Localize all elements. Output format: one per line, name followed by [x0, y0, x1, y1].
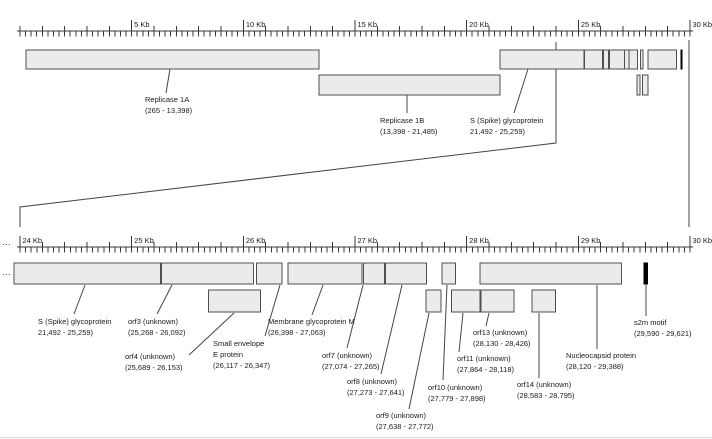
label-nucleocapsid-bottom-line1: Nucleocapsid protein: [566, 350, 636, 361]
feature-orf8-bottom: [385, 263, 426, 284]
feature-orf10-top: [640, 50, 643, 69]
label-orf3-bottom-line1: orf3 (unknown): [128, 316, 186, 327]
top-ruler-label: 5 Kb: [134, 20, 149, 29]
label-e-protein-bottom-line3: (26,117 - 26,347): [213, 360, 270, 371]
label-s-glycoprotein-top-line1: S (Spike) glycoprotein: [470, 115, 543, 126]
feature-orf11-top: [642, 75, 648, 95]
label-orf7-bottom-line2: (27,074 - 27,265): [322, 361, 380, 372]
feature-nucleocapsid-top: [648, 50, 676, 69]
feature-s2m-top: [681, 50, 682, 69]
label-orf13-bottom-line2: (28,130 - 28,426): [473, 338, 531, 349]
label-orf3-bottom: orf3 (unknown)(25,268 - 26,092): [128, 316, 186, 338]
feature-replicase-1a-top: [26, 50, 319, 69]
bottom-ruler-label: 28 Kb: [469, 236, 489, 245]
connector-orf3-bottom: [157, 285, 172, 314]
connector-orf8-bottom: [381, 285, 402, 374]
label-orf14-bottom-line2: (28,583 - 28,795): [517, 390, 575, 401]
label-m-glycoprotein-bottom: Membrane glycoprotein M(26,398 - 27,063): [268, 316, 355, 338]
label-orf13-bottom-line1: orf13 (unknown): [473, 327, 531, 338]
connector-replicase-1a-top: [166, 69, 170, 93]
diagram-canvas: 5 Kb10 Kb15 Kb20 Kb25 Kb30 Kb24 Kb25 Kb2…: [0, 0, 712, 439]
top-ruler-label: 15 Kb: [357, 20, 377, 29]
figure-bottom-edge: [0, 437, 712, 438]
top-ruler-label: 20 Kb: [469, 20, 489, 29]
bottom-ruler-label: 26 Kb: [246, 236, 266, 245]
bottom-track-continuation-ellipsis: ...: [2, 268, 11, 277]
label-orf10-bottom-line2: (27,779 - 27,898): [428, 393, 486, 404]
label-orf8-bottom-line1: orf8 (unknown): [347, 376, 405, 387]
connector-s-glycoprotein-bottom: [74, 285, 85, 314]
feature-orf8-top: [629, 50, 637, 69]
label-orf7-bottom-line1: orf7 (unknown): [322, 350, 380, 361]
label-s-glycoprotein-bottom-line1: S (Spike) glycoprotein: [38, 316, 111, 327]
feature-orf14-bottom: [532, 290, 556, 312]
top-ruler-label: 25 Kb: [581, 20, 601, 29]
label-e-protein-bottom-line2: E protein: [213, 349, 270, 360]
connector-orf13-bottom: [486, 313, 489, 326]
feature-orf7-top: [625, 50, 629, 69]
feature-orf7-bottom: [363, 263, 384, 284]
top-ruler-label: 10 Kb: [246, 20, 266, 29]
bottom-ruler-label: 27 Kb: [358, 236, 378, 245]
bottom-ruler-continuation-ellipsis: ...: [2, 238, 11, 247]
label-s-glycoprotein-bottom: S (Spike) glycoprotein21,492 - 25,259): [38, 316, 111, 338]
label-replicase-1a-top-line1: Replicase 1A: [145, 94, 192, 105]
feature-s-glycoprotein-top: [500, 50, 584, 69]
label-orf11-bottom-line1: orf11 (unknown): [457, 353, 514, 364]
connector-s-glycoprotein-top: [514, 69, 528, 113]
label-replicase-1b-top: Replicase 1B(13,398 - 21,485): [380, 115, 438, 137]
label-e-protein-bottom-line1: Small envelope: [213, 338, 270, 349]
feature-s2m-bottom: [644, 263, 647, 284]
label-s2m-bottom-line1: s2m motif: [634, 317, 692, 328]
label-orf9-bottom-line1: orf9 (unknown): [376, 410, 434, 421]
feature-orf3-bottom: [162, 263, 254, 284]
label-m-glycoprotein-bottom-line2: (26,398 - 27,063): [268, 327, 355, 338]
bottom-ruler: 24 Kb25 Kb26 Kb27 Kb28 Kb29 Kb30 Kb: [17, 236, 712, 253]
label-orf8-bottom-line2: (27,273 - 27,641): [347, 387, 405, 398]
feature-replicase-1b-top: [319, 75, 500, 95]
label-m-glycoprotein-bottom-line1: Membrane glycoprotein M: [268, 316, 355, 327]
feature-e-protein-top: [603, 50, 608, 69]
label-orf10-bottom-line1: orf10 (unknown): [428, 382, 486, 393]
label-orf4-bottom-line1: orf4 (unknown): [125, 351, 183, 362]
genome-map-figure: 5 Kb10 Kb15 Kb20 Kb25 Kb30 Kb24 Kb25 Kb2…: [0, 0, 712, 439]
label-orf3-bottom-line2: (25,268 - 26,092): [128, 327, 186, 338]
label-nucleocapsid-bottom: Nucleocapsid protein(28,120 - 29,388): [566, 350, 636, 372]
label-orf8-bottom: orf8 (unknown)(27,273 - 27,641): [347, 376, 405, 398]
label-s-glycoprotein-top-line2: 21,492 - 25,259): [470, 126, 543, 137]
label-orf9-bottom: orf9 (unknown)(27,638 - 27,772): [376, 410, 434, 432]
feature-orf4-bottom: [209, 290, 261, 312]
label-s-glycoprotein-bottom-line2: 21,492 - 25,259): [38, 327, 111, 338]
label-replicase-1b-top-line1: Replicase 1B: [380, 115, 438, 126]
label-orf11-bottom-line2: (27,864 - 28,118): [457, 364, 514, 375]
bottom-ruler-label: 29 Kb: [581, 236, 601, 245]
label-orf7-bottom: orf7 (unknown)(27,074 - 27,265): [322, 350, 380, 372]
feature-orf13-bottom: [481, 290, 514, 312]
feature-orf10-bottom: [442, 263, 455, 284]
label-replicase-1a-top: Replicase 1A(265 - 13,398): [145, 94, 192, 116]
label-orf13-bottom: orf13 (unknown)(28,130 - 28,426): [473, 327, 531, 349]
label-s-glycoprotein-top: S (Spike) glycoprotein21,492 - 25,259): [470, 115, 543, 137]
label-orf9-bottom-line2: (27,638 - 27,772): [376, 421, 434, 432]
bottom-ruler-label: 24 Kb: [23, 236, 43, 245]
label-replicase-1a-top-line2: (265 - 13,398): [145, 105, 192, 116]
label-orf11-bottom: orf11 (unknown)(27,864 - 28,118): [457, 353, 514, 375]
connector-orf11-bottom: [459, 313, 463, 352]
feature-e-protein-bottom: [256, 263, 282, 284]
label-orf4-bottom: orf4 (unknown)(25,689 - 26,153): [125, 351, 183, 373]
feature-s-glycoprotein-bottom: [14, 263, 161, 284]
label-s2m-bottom: s2m motif(29,590 - 29,621): [634, 317, 692, 339]
top-ruler: 5 Kb10 Kb15 Kb20 Kb25 Kb30 Kb: [17, 20, 712, 37]
connector-orf9-bottom: [409, 313, 429, 409]
bottom-track-features: [14, 263, 648, 312]
label-orf14-bottom: orf14 (unknown)(28,583 - 28,795): [517, 379, 575, 401]
feature-m-glycoprotein-bottom: [288, 263, 362, 284]
label-replicase-1b-top-line2: (13,398 - 21,485): [380, 126, 438, 137]
feature-orf11-bottom: [451, 290, 479, 312]
label-s2m-bottom-line2: (29,590 - 29,621): [634, 328, 692, 339]
label-orf14-bottom-line1: orf14 (unknown): [517, 379, 575, 390]
top-track-features: [26, 50, 682, 95]
label-orf4-bottom-line2: (25,689 - 26,153): [125, 362, 183, 373]
bottom-ruler-label: 30 Kb: [693, 236, 712, 245]
label-orf10-bottom: orf10 (unknown)(27,779 - 27,898): [428, 382, 486, 404]
feature-orf9-top: [637, 75, 640, 95]
top-ruler-label: 30 Kb: [692, 20, 712, 29]
feature-nucleocapsid-bottom: [480, 263, 622, 284]
feature-m-glycoprotein-top: [610, 50, 625, 69]
feature-orf3-top: [584, 50, 602, 69]
label-e-protein-bottom: Small envelopeE protein(26,117 - 26,347): [213, 338, 270, 371]
label-nucleocapsid-bottom-line2: (28,120 - 29,388): [566, 361, 636, 372]
bottom-ruler-label: 25 Kb: [134, 236, 154, 245]
connector-m-glycoprotein-bottom: [312, 285, 323, 315]
connector-orf10-bottom: [443, 285, 447, 380]
feature-orf9-bottom: [426, 290, 441, 312]
